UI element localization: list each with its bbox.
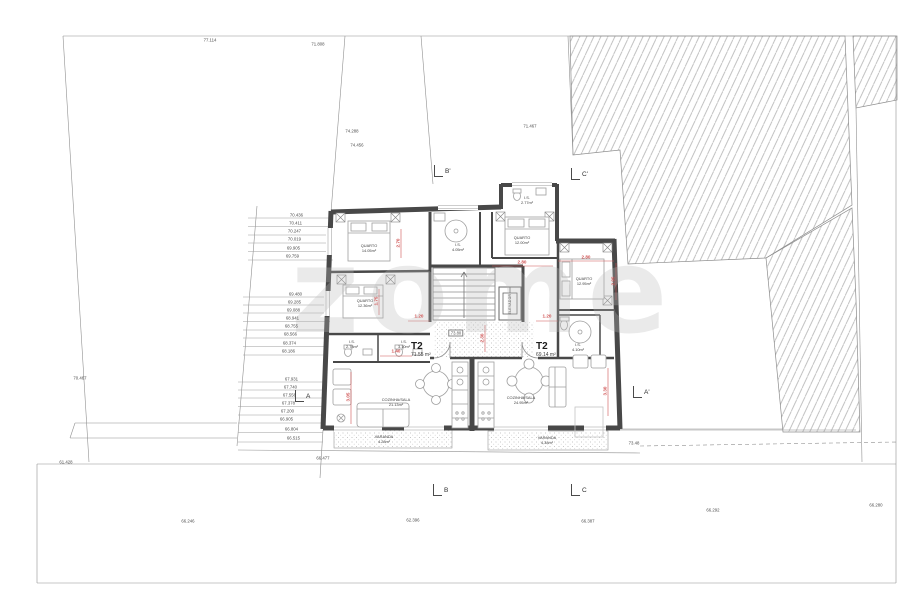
section-marker-b: B [433,484,448,496]
elevation-label: 66.515 [287,436,300,441]
dimension-label: 2.80 [518,260,527,265]
elevation-label: 70.019 [288,237,301,242]
room-label-wc-wing-right: I.S.2.77m² [521,195,533,205]
bed-left-1 [348,221,390,261]
elevation-label: 66.387 [581,519,594,524]
elevation-label: 66.905 [280,417,293,422]
room-label-bedroom2-left: QUARTO12.36m² [357,298,374,308]
elevation-label: 70.411 [289,221,302,226]
section-marker-b-prime: B' [434,165,451,177]
elevation-label: 67.740 [284,385,297,390]
elevation-label: 69.285 [288,300,301,305]
apartment-area-right: 69.14 m² [536,353,556,359]
floor-plan-canvas: zome T2 71.55 m² T2 69.14 m² QUARTO14.05… [0,0,900,597]
room-label-veranda-right: VARANDA4.38m² [538,435,557,445]
room-label-bath-right: I.S.4.10m² [572,342,584,352]
elevation-label: 70.436 [290,213,303,218]
section-letter: C' [582,171,588,178]
apartment-label-right: T2 69.14 m² [536,341,556,359]
elevation-label: 67.931 [285,377,298,382]
section-letter: B [444,487,448,494]
elevation-label: 69.088 [287,308,300,313]
dimension-label: 3.30 [603,387,608,396]
section-bracket-icon [571,168,580,180]
elevation-label: 69.759 [286,254,299,259]
elevation-label: 66.246 [181,519,194,524]
section-letter: A' [644,389,650,396]
elevator-label: ELEVADOR [508,294,512,315]
room-label-wc1-left: I.S.2.78m² [346,339,358,349]
apartment-label-left: T2 71.55 m² [411,341,431,359]
elevation-label: 73.48 [629,441,640,446]
dimension-label: 1.75 [374,297,379,306]
elevation-label: 66.477 [316,456,329,461]
table-left [416,364,457,405]
elevation-label: 71.467 [523,124,536,129]
section-bracket-icon [295,390,304,402]
elevation-label: 68.755 [285,324,298,329]
section-bracket-icon [433,484,442,496]
room-label-bedroom1-right: QUARTO12.00m² [514,235,531,245]
elevation-label: 67.200 [281,409,294,414]
elevation-label: 77.114 [204,38,217,43]
section-bracket-icon [571,484,580,496]
kitchen-left [452,362,468,428]
sofa-right [549,367,566,407]
dimension-label: 2.70 [396,239,401,248]
elevation-label: 69.480 [289,292,302,297]
dimension-label: 3.05 [346,393,351,402]
elevation-label: 62.396 [406,518,419,523]
elevation-label: 68.941 [286,316,299,321]
elevation-label: 68.374 [283,341,296,346]
apartment-type-left: T2 [411,341,431,352]
shower-left [434,213,467,242]
elevation-label: 66.280 [869,503,882,508]
room-label-veranda-left: VARANDA4.28m² [375,434,394,444]
kitchen-right [478,362,494,428]
room-label-bedroom2-right: QUARTO12.95m² [576,276,593,286]
shower-right [560,317,591,343]
apartment-area-left: 71.55 m² [411,353,431,359]
elevation-label: 68.566 [284,332,297,337]
elevation-label: 71.808 [311,42,324,47]
stairs [433,268,495,320]
room-label-bedroom1-left: QUARTO14.05m² [361,243,378,253]
section-marker-a: A [295,390,310,402]
section-marker-a-prime: A' [633,386,650,398]
section-letter: A [306,393,310,400]
elevation-label: 69.905 [287,246,300,251]
apartment-type-right: T2 [536,341,556,352]
room-label-living-left: COZINHA/SALA21.13m² [382,397,411,407]
dimension-label: 1.40 [392,349,401,354]
section-marker-c: C [571,484,587,496]
elevation-label: 74.288 [345,129,358,134]
elevation-label: 68.186 [282,349,295,354]
elevation-label: 67.378 [282,401,295,406]
elevation-label: 70.467 [73,376,86,381]
section-letter: C [582,487,587,494]
dimension-label: 1.20 [415,314,424,319]
elevation-label: 61.428 [59,460,72,465]
section-marker-c-prime: C' [571,168,588,180]
dimension-label: 2.95 [611,277,616,286]
elevation-label: 70.247 [288,229,301,234]
room-label-living-right: COZINHA/SALA24.95m² [507,395,536,405]
room-label-bath-top-left: I.S.4.05m² [452,242,464,252]
section-letter: B' [445,168,451,175]
dimension-label: 2.80 [582,255,591,260]
dimension-label: 2.30 [480,334,485,343]
site-plan-svg [0,0,900,597]
elevation-label: 66.804 [285,427,298,432]
dimension-label: 1.20 [543,314,552,319]
elevation-label: 66.292 [706,508,719,513]
hall-level-label: 73.80 [448,330,463,337]
section-bracket-icon [434,165,443,177]
elevation-label: 74.456 [350,143,363,148]
section-bracket-icon [633,386,642,398]
